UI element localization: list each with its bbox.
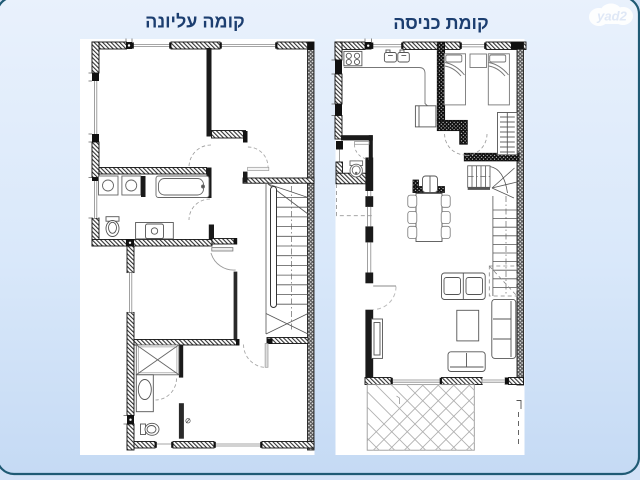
svg-text:קומת כניסה: קומת כניסה [393,13,489,33]
svg-text:קומה עליונה: קומה עליונה [145,12,245,32]
svg-text:yad2: yad2 [596,9,627,24]
